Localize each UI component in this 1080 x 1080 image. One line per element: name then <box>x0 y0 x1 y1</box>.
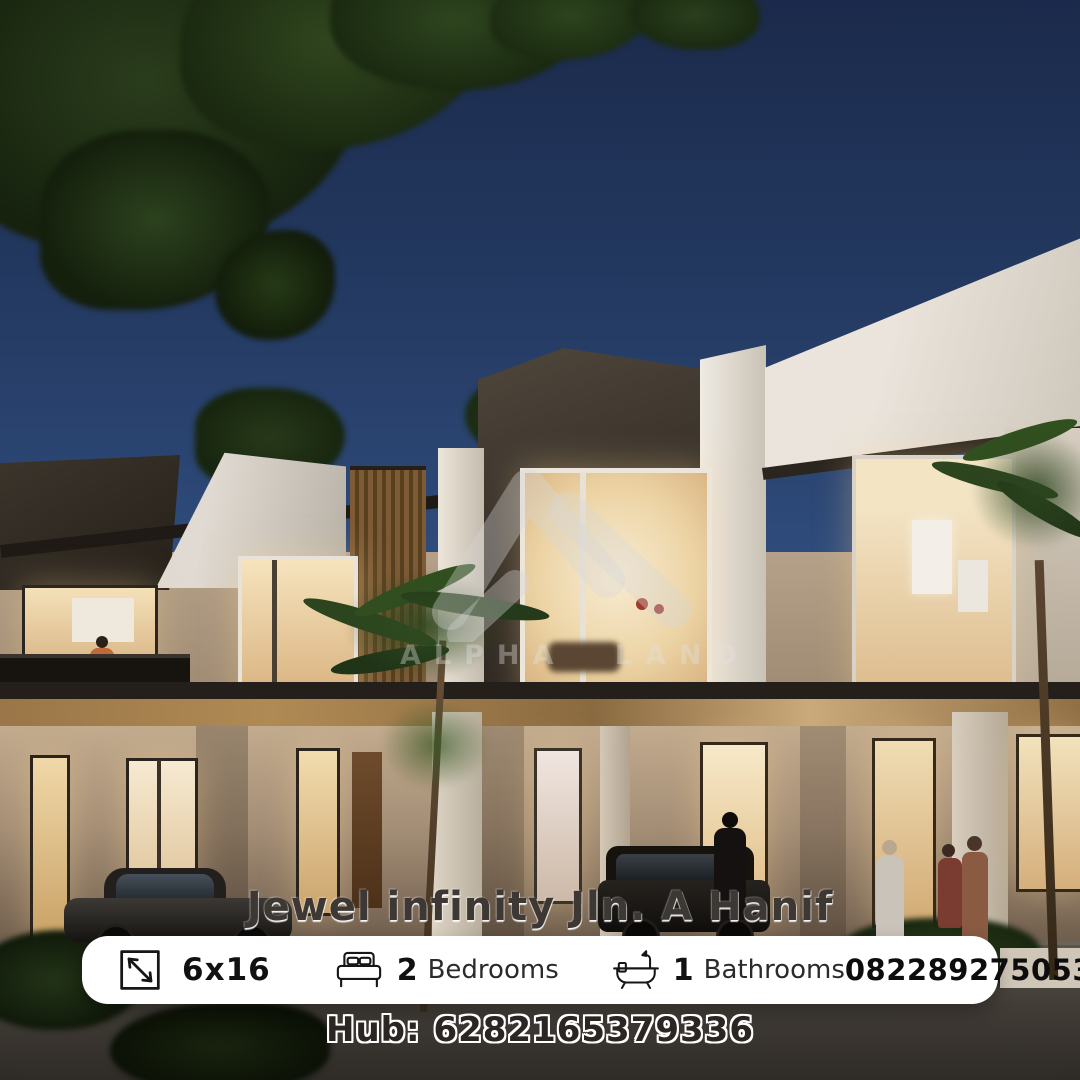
size-spec: 6x16 <box>118 948 271 992</box>
hub-contact: Hub: 6282165379336 <box>326 1010 754 1050</box>
bed-icon <box>333 949 385 991</box>
listing-title: Jewel infinity Jln. A Hanif <box>247 884 833 930</box>
bathrooms-spec: 1 Bathrooms <box>611 948 845 992</box>
bathrooms-count: 1 <box>673 953 694 988</box>
info-bar: 6x16 2 Bedrooms <box>82 936 998 1004</box>
bathrooms-label: Bathrooms <box>704 955 845 985</box>
bedrooms-label: Bedrooms <box>428 955 559 985</box>
phone-number: 082289275053 <box>845 953 1080 987</box>
bedrooms-spec: 2 Bedrooms <box>333 949 559 991</box>
watermark: ALPHA LAND <box>400 452 730 671</box>
size-value: 6x16 <box>182 952 271 988</box>
property-render-image: ALPHA LAND Jewel infinity Jln. A Hanif 6… <box>0 0 1080 1080</box>
bathtub-icon <box>611 948 661 992</box>
watermark-brand: ALPHA LAND <box>400 640 730 671</box>
dimension-arrow-icon <box>118 948 162 992</box>
alpha-land-logo <box>415 452 715 642</box>
bedrooms-count: 2 <box>397 953 418 988</box>
